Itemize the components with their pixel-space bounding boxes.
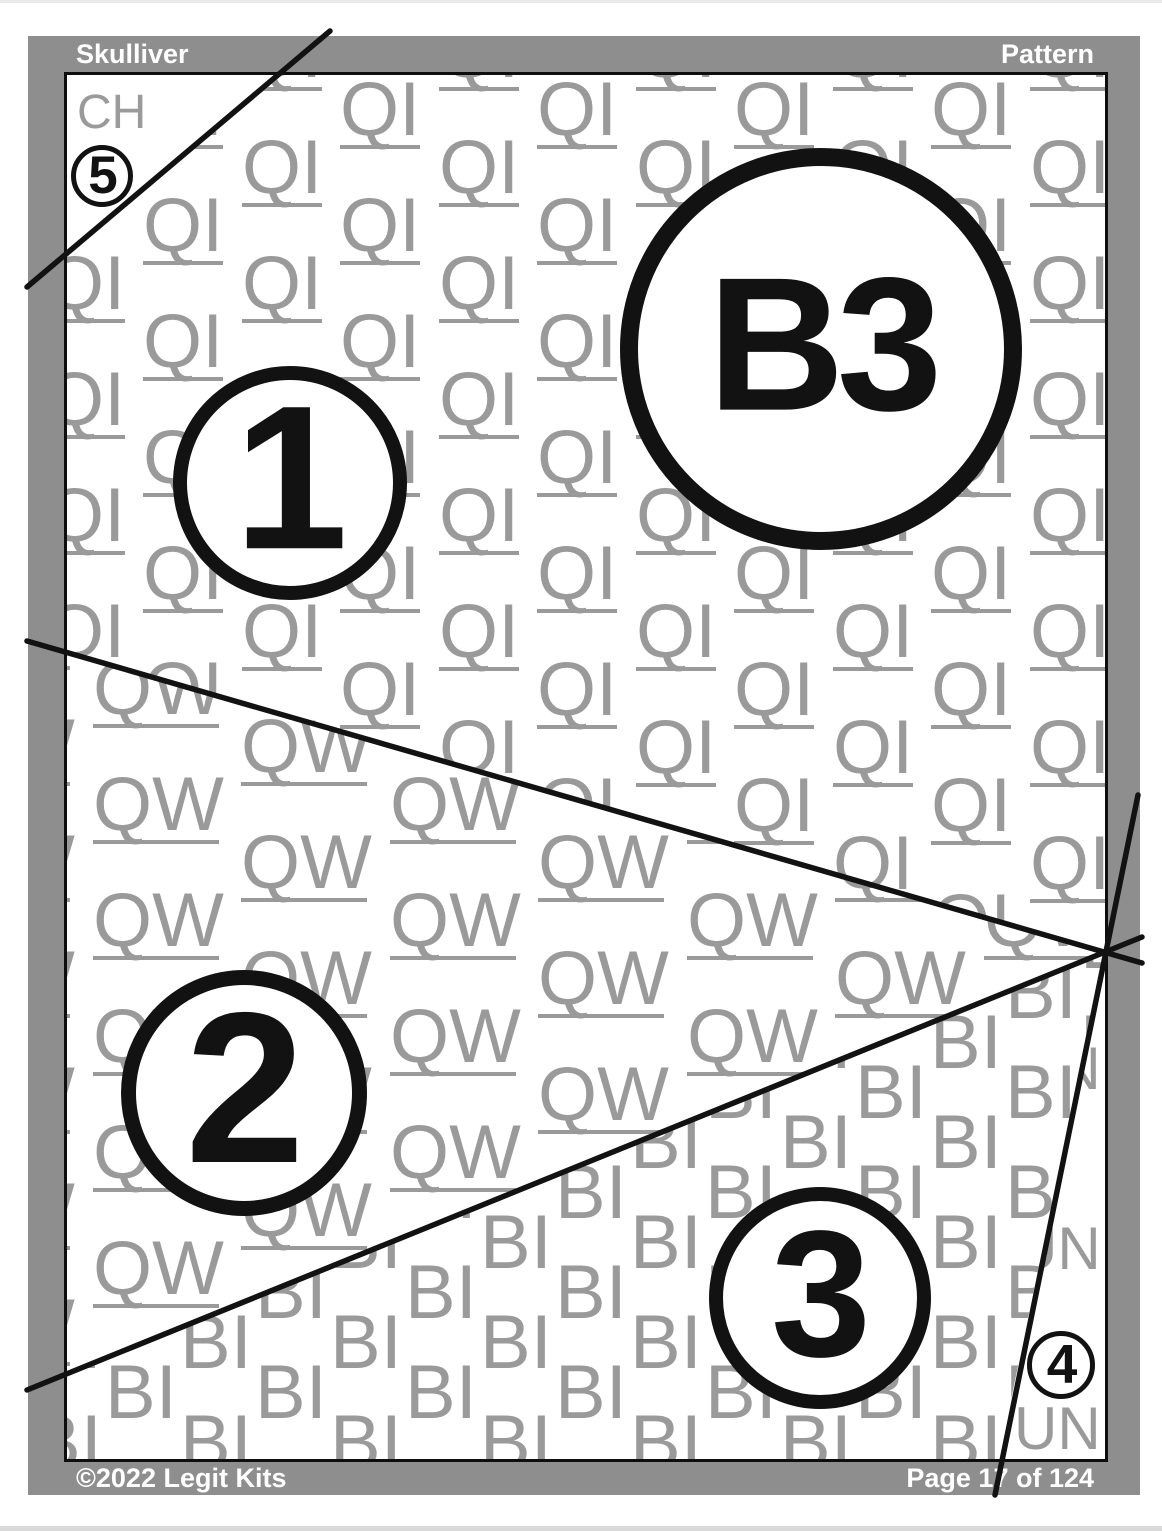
fabric-label-underline: [538, 898, 664, 902]
fabric-label: QI: [340, 652, 420, 728]
fabric-label: QI: [439, 246, 519, 322]
fabric-label: BI: [330, 1305, 402, 1381]
fabric-label-underline: [439, 203, 519, 207]
fabric-label-underline: [64, 1362, 70, 1366]
piece-circle-3: 3: [709, 1187, 931, 1409]
fabric-label: QI: [1030, 826, 1108, 902]
fabric-label-underline: [340, 609, 420, 613]
fabric-label-underline: [734, 609, 814, 613]
fabric-label-underline: [340, 377, 420, 381]
fabric-label: BI: [480, 1205, 552, 1281]
fabric-label-underline: [687, 1072, 813, 1076]
fabric-label: QI: [931, 72, 1011, 148]
header-title: Skulliver: [76, 36, 189, 73]
fabric-label: QI: [1030, 710, 1108, 786]
fabric-label-underline: [143, 609, 223, 613]
fabric-label: BI: [480, 1405, 552, 1462]
fabric-label: QI: [1030, 594, 1108, 670]
fabric-label: QW: [64, 709, 75, 785]
fabric-label-underline: [931, 841, 1011, 845]
fabric-label-underline: [833, 667, 913, 671]
block-label-circle: B3: [620, 148, 1022, 550]
fabric-label-underline: [242, 319, 322, 323]
fabric-label: BI: [255, 1355, 327, 1431]
fabric-label: QI: [64, 478, 125, 554]
fabric-label: QI: [734, 72, 814, 148]
fabric-label: BI: [630, 1305, 702, 1381]
fabric-label: BI: [255, 1455, 327, 1462]
fabric-label-underline: [241, 782, 367, 786]
fabric-label: BI: [330, 1405, 402, 1462]
fabric-label-underline: [439, 551, 519, 555]
fabric-label: QI: [537, 72, 617, 148]
fabric-label: QI: [143, 188, 223, 264]
fabric-label: QW: [390, 883, 521, 959]
fabric-label-underline: [734, 841, 814, 845]
fabric-label-underline: [833, 551, 913, 555]
fabric-label: QW: [64, 941, 75, 1017]
fabric-label: QI: [64, 362, 125, 438]
fabric-label: QI: [439, 594, 519, 670]
fabric-label: BI: [855, 1455, 927, 1462]
fabric-label-underline: [64, 435, 125, 439]
fabric-label: BI: [64, 1405, 102, 1462]
fabric-label: QW: [390, 999, 521, 1075]
fabric-label: QI: [242, 594, 322, 670]
fabric-label: QW: [538, 825, 669, 901]
fabric-label: QI: [833, 594, 913, 670]
fabric-label: BI: [180, 1405, 252, 1462]
fabric-label-underline: [1030, 667, 1108, 671]
fabric-label: QW: [64, 1289, 75, 1365]
fabric-label: BI: [555, 1455, 627, 1462]
fabric-label: QW: [390, 1115, 521, 1191]
fabric-label: CH: [77, 89, 146, 137]
fabric-label-underline: [439, 87, 519, 91]
fabric-label-underline: [242, 667, 322, 671]
fabric-label: QI: [537, 420, 617, 496]
fabric-label: QI: [734, 768, 814, 844]
fabric-label: BI: [930, 1305, 1002, 1381]
fabric-label: QI: [64, 246, 125, 322]
piece-number: 5: [88, 144, 115, 205]
fabric-label-underline: [537, 377, 617, 381]
fabric-label-underline: [687, 956, 813, 960]
fabric-label-underline: [340, 261, 420, 265]
fabric-label: BI: [855, 1055, 927, 1131]
fabric-label: QI: [1030, 478, 1108, 554]
fabric-label-underline: [64, 551, 125, 555]
fabric-label: QI: [636, 710, 716, 786]
fabric-label-underline: [931, 609, 1011, 613]
fabric-label: QW: [538, 941, 669, 1017]
fabric-label: QI: [537, 188, 617, 264]
fabric-label: QI: [143, 304, 223, 380]
fabric-label-underline: [439, 667, 519, 671]
fabric-label-underline: [537, 261, 617, 265]
fabric-label-underline: [93, 956, 219, 960]
fabric-label-underline: [1030, 319, 1108, 323]
fabric-label: QI: [537, 304, 617, 380]
fabric-label: QW: [93, 883, 224, 959]
pattern-page: { "header": { "title_left": "Skulliver",…: [0, 0, 1162, 1531]
fabric-label-underline: [64, 1130, 70, 1134]
fabric-label: QW: [64, 1173, 75, 1249]
fabric-label: BI: [930, 1405, 1002, 1462]
fabric-label: BI: [555, 1355, 627, 1431]
fabric-label: QW: [835, 941, 966, 1017]
block-label: B3: [708, 236, 935, 454]
fabric-label-underline: [833, 87, 913, 91]
fabric-label-underline: [537, 609, 617, 613]
fabric-label: BI: [705, 1455, 777, 1462]
fabric-label: QI: [242, 130, 322, 206]
fabric-label: BI: [555, 1255, 627, 1331]
fabric-label: QI: [1030, 130, 1108, 206]
fabric-label: BI: [105, 1455, 177, 1462]
fabric-label-underline: [64, 898, 70, 902]
fabric-label-underline: [636, 87, 716, 91]
piece-number: 1: [234, 360, 346, 596]
fabric-label: BI: [105, 1355, 177, 1431]
piece-number: 2: [185, 964, 303, 1212]
fabric-label: QI: [833, 710, 913, 786]
fabric-label: BI: [930, 1205, 1002, 1281]
fabric-label: QI: [340, 304, 420, 380]
fabric-label: QW: [93, 767, 224, 843]
fabric-label-underline: [390, 1188, 516, 1192]
fabric-label-underline: [439, 319, 519, 323]
fabric-label-underline: [241, 1246, 367, 1250]
fabric-label-underline: [1030, 435, 1108, 439]
fabric-label: QW: [687, 883, 818, 959]
fabric-label: QI: [734, 652, 814, 728]
fabric-label: QI: [537, 652, 617, 728]
fabric-label-underline: [537, 145, 617, 149]
fabric-label: QW: [64, 1057, 75, 1133]
fabric-label-underline: [636, 551, 716, 555]
fabric-label: QI: [931, 768, 1011, 844]
fabric-label-underline: [390, 956, 516, 960]
fabric-label-underline: [64, 782, 70, 786]
fabric-label: BI: [405, 1455, 477, 1462]
fabric-label-underline: [93, 724, 219, 728]
fabric-label-underline: [1030, 899, 1108, 903]
fabric-label: QW: [241, 825, 372, 901]
fabric-label: QI: [340, 188, 420, 264]
top-edge-line: [0, 0, 1162, 3]
fabric-label: QI: [340, 72, 420, 148]
fabric-label: QW: [93, 1231, 224, 1307]
fabric-label-underline: [835, 1014, 961, 1018]
fabric-label-underline: [64, 666, 70, 670]
fabric-label-underline: [1030, 783, 1108, 787]
fabric-label-underline: [143, 261, 223, 265]
fabric-label-underline: [636, 783, 716, 787]
footer-copyright-label: ©2022 Legit Kits: [76, 1461, 286, 1495]
fabric-label-underline: [537, 725, 617, 729]
fabric-label-underline: [636, 667, 716, 671]
fabric-label: BI: [630, 1405, 702, 1462]
fabric-label: QW: [64, 825, 75, 901]
fabric-label-underline: [241, 898, 367, 902]
fabric-label: QI: [931, 652, 1011, 728]
piece-number: 4: [1047, 1332, 1076, 1396]
fabric-label-underline: [439, 435, 519, 439]
fabric-label: BI: [405, 1255, 477, 1331]
fabric-label: BI: [780, 1405, 852, 1462]
fabric-label: BI: [930, 1105, 1002, 1181]
piece-circle-2: 2: [121, 970, 367, 1216]
fabric-label-underline: [1030, 203, 1108, 207]
piece-circle-5: 5: [71, 145, 133, 207]
fabric-label-underline: [64, 319, 125, 323]
fabric-label-underline: [538, 1014, 664, 1018]
fabric-label-underline: [242, 203, 322, 207]
fabric-label-underline: [1030, 551, 1108, 555]
fabric-label: QW: [687, 999, 818, 1075]
fabric-label-underline: [833, 783, 913, 787]
fabric-label-underline: [64, 1014, 70, 1018]
fabric-label: QI: [439, 130, 519, 206]
fabric-label: QI: [931, 536, 1011, 612]
fabric-label: BI: [780, 1105, 852, 1181]
piece-number: 3: [771, 1190, 869, 1397]
piece-circle-1: 1: [173, 366, 407, 600]
fabric-label: QI: [636, 594, 716, 670]
fabric-label: QW: [538, 1057, 669, 1133]
footer-page-number-label: Page 17 of 124: [906, 1461, 1094, 1495]
fabric-label-underline: [537, 493, 617, 497]
fabric-label-underline: [64, 1246, 70, 1250]
fabric-label-underline: [931, 725, 1011, 729]
header-page-type-label: Pattern: [1001, 36, 1094, 73]
fabric-label-underline: [538, 1130, 664, 1134]
fabric-label-underline: [93, 840, 219, 844]
fabric-label: QI: [1030, 362, 1108, 438]
piece-circle-4: 4: [1027, 1331, 1095, 1399]
fabric-label: UN: [1014, 1399, 1101, 1459]
fabric-label: QI: [537, 536, 617, 612]
fabric-label: QI: [1030, 246, 1108, 322]
fabric-label-underline: [93, 1304, 219, 1308]
fabric-label-underline: [390, 840, 516, 844]
bottom-edge-line: [0, 1526, 1162, 1531]
fabric-label-underline: [340, 725, 420, 729]
fabric-label: BI: [480, 1305, 552, 1381]
fabric-label: BI: [630, 1205, 702, 1281]
fabric-label: QI: [439, 362, 519, 438]
fabric-label: BI: [405, 1355, 477, 1431]
fabric-label-underline: [931, 145, 1011, 149]
fabric-label-underline: [734, 725, 814, 729]
fabric-label-underline: [390, 1072, 516, 1076]
fabric-label-underline: [340, 145, 420, 149]
fabric-label-underline: [143, 377, 223, 381]
fabric-label-underline: [1030, 87, 1108, 91]
fabric-label: QI: [439, 478, 519, 554]
fabric-label: QI: [242, 246, 322, 322]
fabric-label: BI: [1005, 1055, 1077, 1131]
